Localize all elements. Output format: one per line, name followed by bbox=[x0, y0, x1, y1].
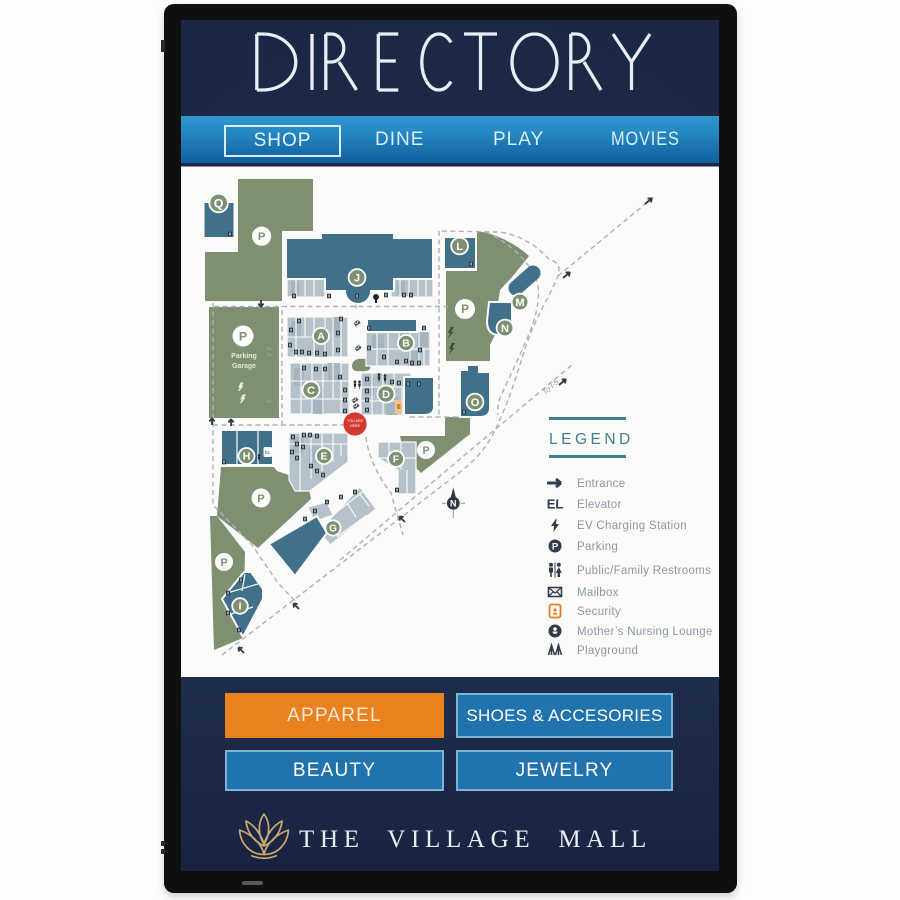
svg-text:P: P bbox=[257, 493, 265, 505]
svg-text:P: P bbox=[258, 231, 266, 243]
svg-text:EV Charging Station: EV Charging Station bbox=[577, 520, 687, 532]
svg-text:Elevator: Elevator bbox=[577, 499, 622, 511]
svg-text:Security: Security bbox=[577, 606, 621, 618]
svg-text:P: P bbox=[552, 541, 559, 552]
svg-text:D: D bbox=[382, 389, 390, 401]
svg-text:EL: EL bbox=[267, 352, 273, 357]
svg-text:N: N bbox=[450, 499, 457, 509]
svg-text:EL: EL bbox=[267, 346, 273, 351]
svg-text:Parking: Parking bbox=[577, 541, 618, 553]
svg-text:LEGEND: LEGEND bbox=[549, 431, 634, 448]
svg-text:M: M bbox=[515, 297, 524, 309]
svg-text:I: I bbox=[239, 602, 242, 613]
svg-text:B: B bbox=[402, 338, 410, 350]
svg-text:H: H bbox=[243, 451, 251, 463]
svg-text:P: P bbox=[461, 302, 469, 316]
svg-text:Mailbox: Mailbox bbox=[577, 587, 619, 599]
svg-text:L: L bbox=[456, 241, 463, 253]
svg-text:YOU ARE: YOU ARE bbox=[347, 419, 364, 423]
svg-text:Playground: Playground bbox=[577, 645, 638, 657]
svg-text:P: P bbox=[422, 445, 429, 457]
svg-text:G: G bbox=[329, 523, 337, 534]
svg-text:P: P bbox=[239, 329, 247, 343]
svg-text:E: E bbox=[320, 451, 327, 463]
svg-text:Entrance: Entrance bbox=[577, 478, 625, 490]
svg-text:J: J bbox=[354, 272, 360, 284]
svg-text:EL: EL bbox=[547, 497, 564, 512]
svg-text:C: C bbox=[307, 385, 315, 397]
svg-text:Garage: Garage bbox=[232, 363, 256, 370]
svg-text:P: P bbox=[220, 557, 227, 569]
svg-text:Parking: Parking bbox=[231, 353, 257, 360]
svg-text:HERE: HERE bbox=[350, 424, 361, 428]
svg-text:F: F bbox=[393, 454, 400, 466]
svg-text:Mother’s Nursing Lounge: Mother’s Nursing Lounge bbox=[577, 626, 713, 638]
svg-text:EL: EL bbox=[267, 399, 273, 404]
svg-text:O: O bbox=[471, 397, 480, 409]
svg-text:Q: Q bbox=[214, 196, 224, 210]
svg-text:Public/Family Restrooms: Public/Family Restrooms bbox=[577, 565, 711, 577]
svg-text:A: A bbox=[317, 331, 325, 343]
svg-text:N: N bbox=[501, 323, 509, 335]
svg-text:EL: EL bbox=[265, 450, 271, 455]
